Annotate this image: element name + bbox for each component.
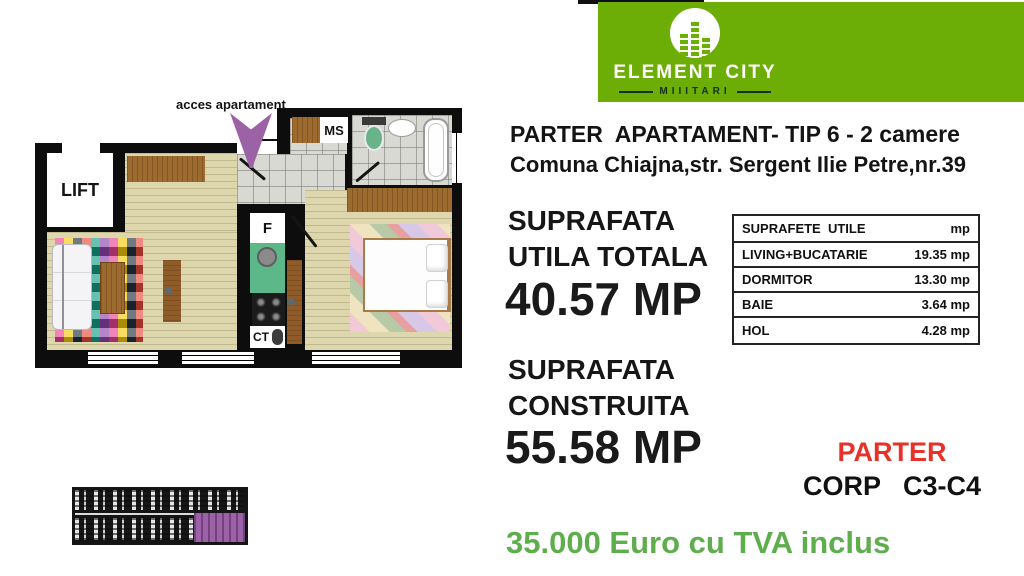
row-value: 4.28 mp (922, 323, 970, 338)
highlighted-unit (194, 513, 245, 542)
table-row: BAIE 3.64 mp (734, 293, 978, 318)
pillow-icon (426, 280, 448, 308)
areas-header-unit: mp (951, 221, 971, 236)
buildings-icon (670, 8, 720, 58)
fridge-box: F (250, 213, 285, 243)
side-window (452, 133, 462, 183)
fridge-label: F (263, 220, 272, 237)
kitchen-sink-icon (257, 247, 277, 267)
useful-area-value: 40.57 MP (505, 272, 702, 326)
bedroom-wardrobe (347, 188, 452, 212)
storage-label: MS (324, 123, 344, 138)
brand-name: ELEMENT CITY (605, 62, 785, 84)
brand-logo: ELEMENT CITY MIIITARI (605, 8, 785, 97)
lift-label: LIFT (61, 180, 99, 201)
flyer-page: ELEMENT CITY MIIITARI PARTER APARTAMENT-… (0, 0, 1024, 576)
living-door-leaf (163, 260, 181, 322)
window (312, 352, 400, 364)
areas-header-label: SUPRAFETE UTILE (742, 221, 866, 236)
boiler-icon (272, 329, 283, 345)
table-row: HOL 4.28 mp (734, 318, 978, 343)
brand-banner: ELEMENT CITY MIIITARI (598, 2, 1024, 102)
pillow-icon (426, 244, 448, 272)
subtitle-dash-right (737, 91, 771, 93)
toilet-tank (362, 117, 386, 125)
row-label: HOL (742, 323, 769, 338)
row-label: BAIE (742, 297, 773, 312)
building-overview-plan (72, 487, 248, 545)
row-value: 19.35 mp (914, 247, 970, 262)
shoe-cabinet (292, 117, 320, 143)
subtitle-dash-left (619, 91, 653, 93)
useful-area-label-2: UTILA TOTALA (508, 239, 708, 275)
built-area-label-1: SUPRAFATA (508, 352, 675, 388)
coffee-table-icon (100, 262, 125, 314)
areas-table-header: SUPRAFETE UTILE mp (734, 216, 978, 243)
window (182, 352, 254, 364)
toilet-icon (364, 125, 384, 151)
table-row: DORMITOR 13.30 mp (734, 268, 978, 293)
boiler-box: CT (250, 326, 285, 348)
brand-subtitle-row: MIIITARI (605, 86, 785, 97)
row-label: DORMITOR (742, 272, 813, 287)
row-label: LIVING+BUCATARIE (742, 247, 868, 262)
brand-subtitle: MIIITARI (659, 86, 730, 97)
units-band-top (75, 490, 245, 510)
storage-box: MS (320, 117, 348, 143)
stove-icon (252, 293, 285, 326)
lift-room: LIFT (47, 153, 113, 227)
apartment-type-title: PARTER APARTAMENT- TIP 6 - 2 camere (510, 121, 960, 148)
address-line: Comuna Chiajna,str. Sergent Ilie Petre,n… (510, 152, 966, 178)
floorplan: LIFT MS F (30, 96, 470, 388)
row-value: 3.64 mp (922, 297, 970, 312)
price-text: 35.000 Euro cu TVA inclus (506, 525, 890, 561)
built-area-label-2: CONSTRUITA (508, 388, 689, 424)
building-corp-label: CORP C3-C4 (760, 471, 1024, 502)
bathtub-icon (423, 118, 449, 182)
bedroom-door-leaf (287, 260, 302, 344)
row-value: 13.30 mp (914, 272, 970, 287)
areas-table: SUPRAFETE UTILE mp LIVING+BUCATARIE 19.3… (732, 214, 980, 345)
kitchen-counter (250, 243, 285, 293)
boiler-label: CT (253, 330, 269, 344)
sofa-icon (52, 244, 92, 330)
useful-area-label-1: SUPRAFATA (508, 203, 675, 239)
bathroom-sink-icon (388, 119, 416, 137)
living-wardrobe (127, 156, 205, 182)
access-label: acces apartament (176, 97, 286, 112)
window (88, 352, 158, 364)
table-row: LIVING+BUCATARIE 19.35 mp (734, 243, 978, 268)
built-area-value: 55.58 MP (505, 420, 702, 474)
floor-level-label: PARTER (760, 437, 1024, 468)
